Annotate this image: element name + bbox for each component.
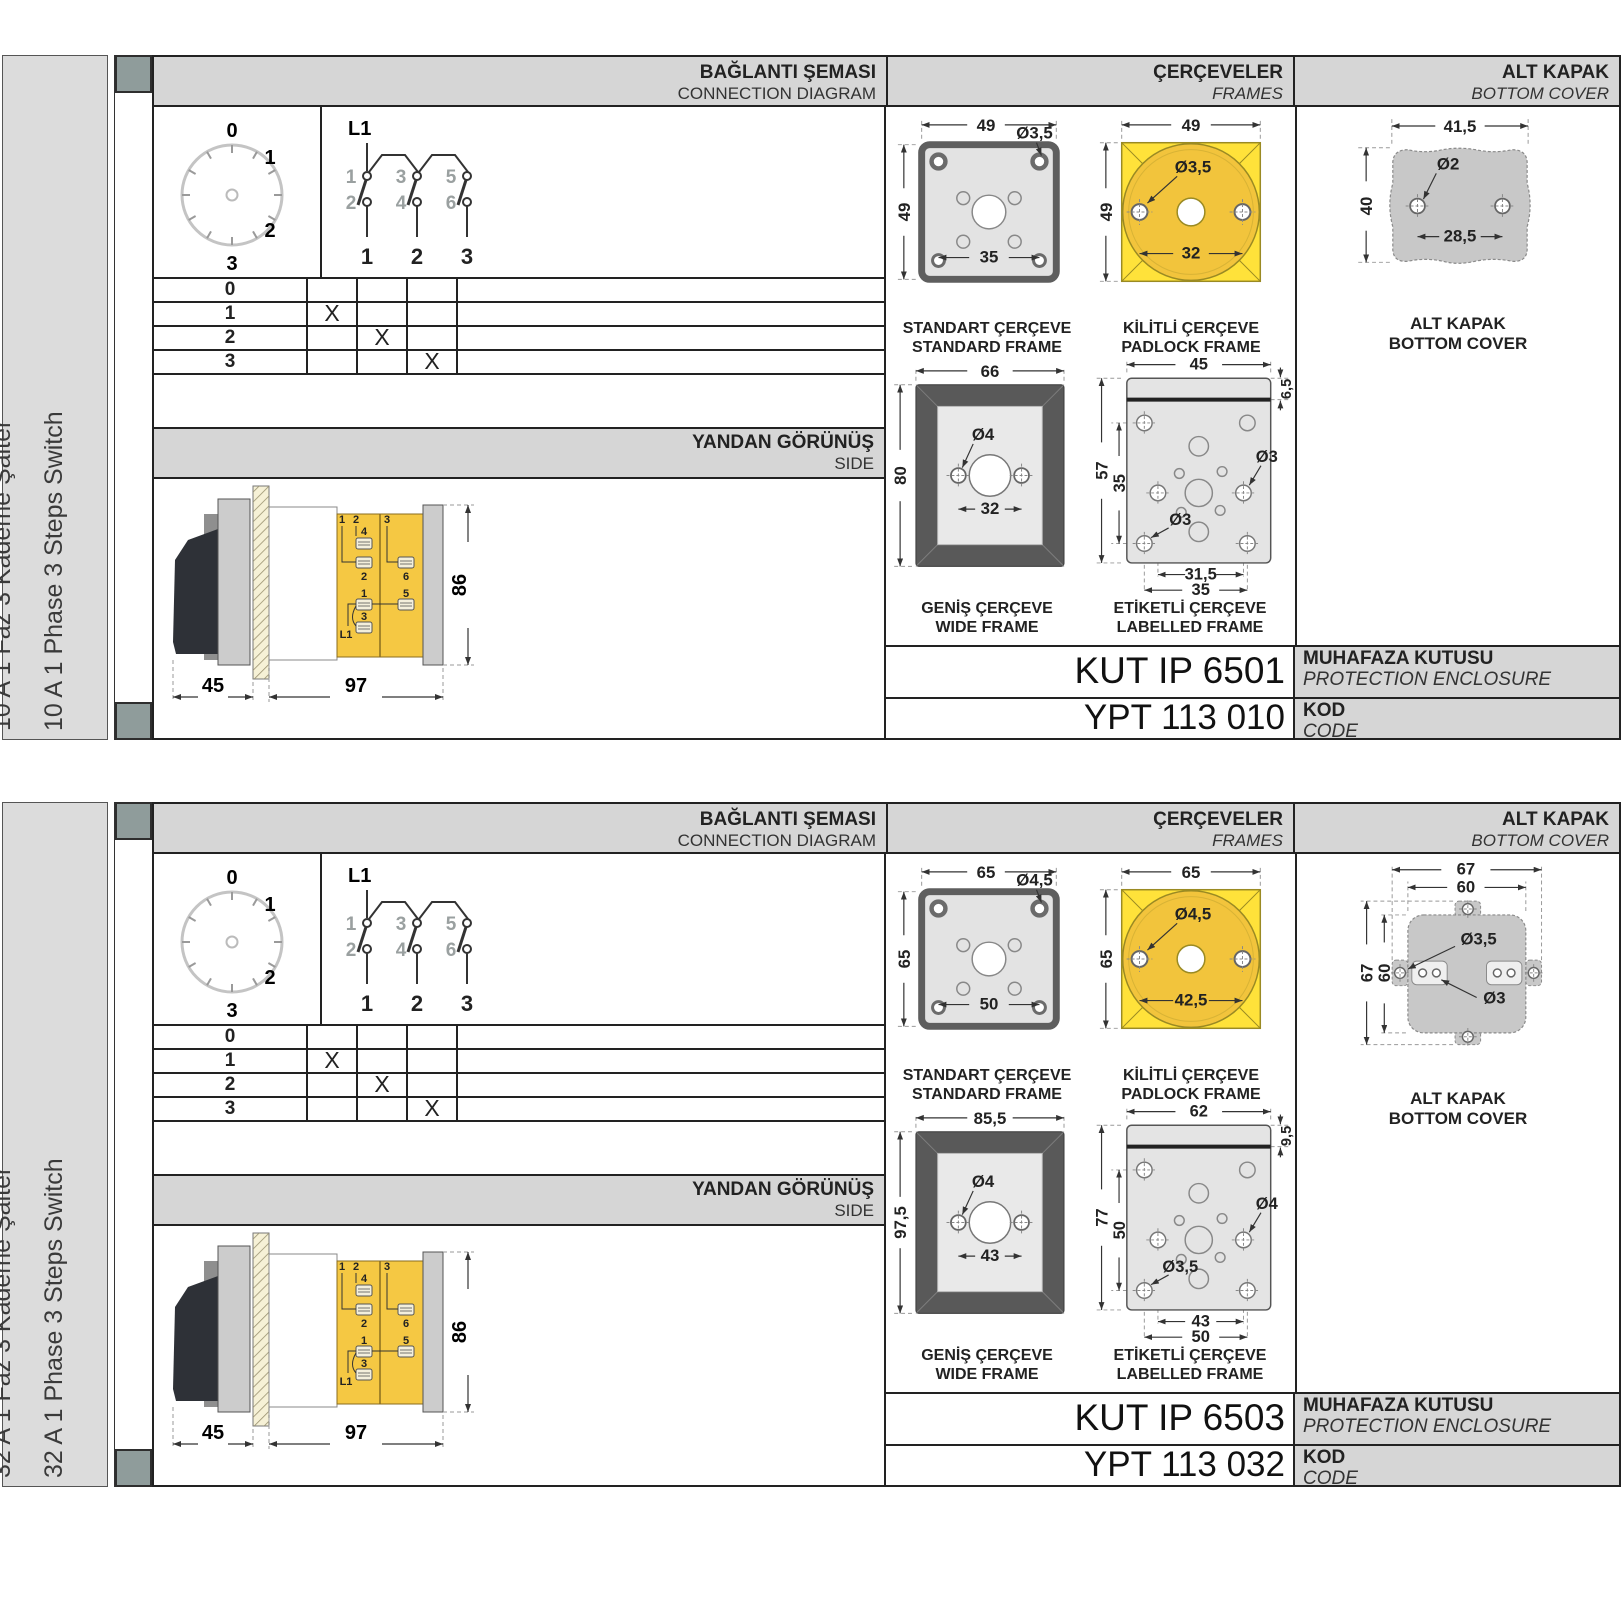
wide-frame-drawing: 66 80 Ø4 32 <box>888 361 1086 600</box>
row-label: 0 <box>154 279 306 301</box>
terminal-label: 2 <box>361 1318 367 1330</box>
side-title-tr: YANDAN GÖRÜNÜŞ <box>154 432 874 454</box>
lab-dim-inner-height: 50 <box>1110 1221 1129 1239</box>
connection-title-tr: BAĞLANTI ŞEMASI <box>158 62 876 84</box>
row-label: 0 <box>154 1026 306 1048</box>
l1-label: L1 <box>348 118 371 140</box>
pole-1: 1 <box>361 244 373 269</box>
terminal-2: 2 <box>346 940 357 961</box>
wire-label: 2 <box>353 1261 359 1273</box>
product-title-english: 10 A 1 Phase 3 Steps Switch <box>40 411 69 731</box>
switch-handle <box>173 529 218 654</box>
product-section: 10 A 1 Faz 3 Kademe Şalter 10 A 1 Phase … <box>0 55 1623 740</box>
terminal-1: 1 <box>346 167 357 188</box>
pole-2: 2 <box>411 244 423 269</box>
enclosure-code: KUT IP 6503 <box>886 1394 1293 1444</box>
mark-cell <box>406 1026 458 1048</box>
wire-label: 3 <box>384 514 390 526</box>
terminal-label: 6 <box>403 1318 409 1330</box>
cover-dim-width: 41,5 <box>1444 117 1477 136</box>
row-label: 3 <box>154 351 306 373</box>
mark-cell <box>306 1026 356 1048</box>
order-code: YPT 113 032 <box>886 1446 1293 1485</box>
switch-body-front <box>269 507 337 660</box>
pad-dim-inner: 32 <box>1182 244 1201 263</box>
lab-hole-right: Ø3 <box>1256 447 1278 466</box>
caption-en: BOTTOM COVER <box>1297 334 1619 354</box>
std-dim-inner: 35 <box>980 248 999 267</box>
l1-label: L1 <box>348 865 371 887</box>
binder-spine <box>114 55 152 740</box>
cover-title-en: BOTTOM COVER <box>1299 831 1609 850</box>
terminal-3: 3 <box>396 167 407 188</box>
protection-enclosure-row: KUT IP 6501 MUHAFAZA KUTUSU PROTECTION E… <box>886 645 1619 697</box>
order-code: YPT 113 010 <box>886 699 1293 738</box>
standard-frame-caption: STANDART ÇERÇEVE STANDARD FRAME <box>888 1066 1086 1104</box>
mark-cell <box>356 1098 406 1120</box>
caption-tr: ETİKETLİ ÇERÇEVE <box>1090 1346 1290 1365</box>
wide-dim-width: 66 <box>981 362 1000 381</box>
frames-area: 49 49 Ø3,5 35 STANDART ÇERÇEVE STANDARD … <box>886 107 1295 645</box>
table-row: 0 <box>154 279 884 303</box>
mark-cell <box>406 303 458 325</box>
side-view-drawing: 1 2 3 4 2 6 1 5 3 L1 <box>160 1199 680 1462</box>
product-title-turkish: 32 A 1 Faz 3 Kademe Şalter <box>0 1167 17 1478</box>
enclosure-label-en: PROTECTION ENCLOSURE <box>1303 1417 1611 1437</box>
wide-hole-dia: Ø4 <box>972 425 995 444</box>
order-code-row: YPT 113 032 KOD CODE <box>886 1444 1619 1485</box>
mark-cell <box>406 1050 458 1072</box>
caption-tr: GENİŞ ÇERÇEVE <box>888 599 1086 618</box>
padlock-frame-drawing: 49 49 Ø3,5 32 <box>1092 109 1290 322</box>
lab-dim-width: 45 <box>1190 354 1208 373</box>
pad-dim-width: 65 <box>1182 863 1201 882</box>
caption-en: STANDARD FRAME <box>888 338 1086 357</box>
row-label: 2 <box>154 327 306 349</box>
padlock-frame-drawing: 65 65 Ø4,5 42,5 <box>1092 856 1290 1069</box>
pad-dim-inner: 42,5 <box>1175 991 1208 1010</box>
bottom-cover-caption: ALT KAPAK BOTTOM COVER <box>1297 1089 1619 1129</box>
mark-cell <box>306 279 356 301</box>
wire-label: 1 <box>339 1261 345 1273</box>
code-label-tr: KOD <box>1303 700 1611 722</box>
caption-en: WIDE FRAME <box>888 1365 1086 1384</box>
header-connection-diagram: BAĞLANTI ŞEMASI CONNECTION DIAGRAM <box>154 804 886 852</box>
cover-dim-w2: 60 <box>1457 877 1476 896</box>
header-bottom-cover: ALT KAPAK BOTTOM COVER <box>1293 57 1619 105</box>
labelled-frame-drawing: 62 9,5 77 50 Ø4 Ø3,5 43 50 <box>1086 1098 1295 1348</box>
caption-en: WIDE FRAME <box>888 618 1086 637</box>
binder-spine <box>114 802 152 1487</box>
switch-handle <box>173 1276 218 1401</box>
terminal-label: 6 <box>403 571 409 583</box>
table-row: 1 X <box>154 303 884 327</box>
bottom-cover-drawing-square: 67 60 67 60 Ø3,5 Ø3 ALT KAPAK BOTTOM COV… <box>1297 854 1619 1129</box>
catalog-page: 10 A 1 Faz 3 Kademe Şalter 10 A 1 Phase … <box>0 0 1623 1623</box>
lab-hole-left: Ø3,5 <box>1162 1257 1198 1276</box>
mark-cell: X <box>306 303 356 325</box>
caption-en: LABELLED FRAME <box>1090 618 1290 637</box>
mark-cell <box>356 1026 406 1048</box>
caption-tr: KİLİTLİ ÇERÇEVE <box>1092 319 1290 338</box>
product-sidebar: 10 A 1 Faz 3 Kademe Şalter 10 A 1 Phase … <box>2 55 108 740</box>
connection-diagram-area: 0 1 2 3 L1 <box>154 854 886 1485</box>
caption-en: BOTTOM COVER <box>1297 1109 1619 1129</box>
enclosure-label-tr: MUHAFAZA KUTUSU <box>1303 648 1611 670</box>
product-section: 32 A 1 Faz 3 Kademe Şalter 32 A 1 Phase … <box>0 802 1623 1487</box>
frames-title-en: FRAMES <box>892 831 1283 850</box>
lab-dim-height: 57 <box>1092 461 1111 479</box>
pole-3: 3 <box>461 244 473 269</box>
mark-cell <box>356 1050 406 1072</box>
lab-dim-strip: 9,5 <box>1279 1126 1295 1146</box>
caption-en: LABELLED FRAME <box>1090 1365 1290 1384</box>
mark-cell: X <box>356 1074 406 1096</box>
cover-hole-dia: Ø2 <box>1437 154 1459 173</box>
dial-pos-0: 0 <box>226 867 237 889</box>
mark-cell <box>356 351 406 373</box>
caption-tr: STANDART ÇERÇEVE <box>888 319 1086 338</box>
cover-dim-height: 40 <box>1357 197 1376 216</box>
spine-square-bottom <box>115 702 152 740</box>
pole-1: 1 <box>361 991 373 1016</box>
terminal-6: 6 <box>446 193 457 214</box>
enclosure-label-en: PROTECTION ENCLOSURE <box>1303 670 1611 690</box>
terminal-label: 5 <box>403 588 409 600</box>
protection-enclosure-row: KUT IP 6503 MUHAFAZA KUTUSU PROTECTION E… <box>886 1392 1619 1444</box>
mark-cell <box>306 327 356 349</box>
switch-dial-drawing: 0 1 2 3 <box>154 107 322 279</box>
std-dim-width: 49 <box>977 116 996 135</box>
mark-cell: X <box>406 351 458 373</box>
mark-cell: X <box>306 1050 356 1072</box>
contact-schematic: L1 <box>322 107 884 279</box>
code-label-tr: KOD <box>1303 1447 1611 1469</box>
enclosure-label-tr: MUHAFAZA KUTUSU <box>1303 1395 1611 1417</box>
product-sidebar: 32 A 1 Faz 3 Kademe Şalter 32 A 1 Phase … <box>2 802 108 1487</box>
enclosure-label: MUHAFAZA KUTUSU PROTECTION ENCLOSURE <box>1293 647 1619 697</box>
terminal-4: 4 <box>396 193 407 214</box>
cover-dim-inner: 28,5 <box>1444 227 1477 246</box>
pad-hole-dia: Ø4,5 <box>1175 904 1211 923</box>
wide-frame-caption: GENİŞ ÇERÇEVE WIDE FRAME <box>888 599 1086 637</box>
row-label: 1 <box>154 1050 306 1072</box>
pole-2: 2 <box>411 991 423 1016</box>
cover-title-tr: ALT KAPAK <box>1299 809 1609 831</box>
pad-dim-width: 49 <box>1182 116 1201 135</box>
dial-pos-1: 1 <box>264 894 275 916</box>
product-title-turkish: 10 A 1 Faz 3 Kademe Şalter <box>0 420 17 731</box>
lab-hole-left: Ø3 <box>1169 510 1191 529</box>
row-label: 2 <box>154 1074 306 1096</box>
frames-title-tr: ÇERÇEVELER <box>892 62 1283 84</box>
caption-tr: KİLİTLİ ÇERÇEVE <box>1092 1066 1290 1085</box>
end-plate <box>423 1252 443 1412</box>
connection-title-en: CONNECTION DIAGRAM <box>158 831 876 850</box>
wide-dim-inner: 43 <box>981 1246 1000 1265</box>
product-title-english: 32 A 1 Phase 3 Steps Switch <box>40 1158 69 1478</box>
pole-3: 3 <box>461 991 473 1016</box>
caption-tr: ALT KAPAK <box>1297 314 1619 334</box>
dim-body-depth: 97 <box>345 675 367 697</box>
terminal-label: 3 <box>361 611 367 623</box>
terminal-label: 5 <box>403 1335 409 1347</box>
pad-dim-height: 49 <box>1097 203 1116 222</box>
dial-center <box>227 937 238 948</box>
lab-dim-outer-width: 35 <box>1192 580 1210 596</box>
spine-square-top <box>115 55 152 93</box>
dial-pos-1: 1 <box>264 147 275 169</box>
side-view-drawing: 1 2 3 4 2 6 1 5 3 L1 <box>160 452 680 715</box>
dial-pos-3: 3 <box>226 253 237 275</box>
code-label-en: CODE <box>1303 1469 1611 1489</box>
caption-tr: ALT KAPAK <box>1297 1089 1619 1109</box>
lab-dim-inner-height: 35 <box>1110 474 1129 492</box>
table-row: 2 X <box>154 327 884 351</box>
labelled-frame-drawing: 45 6,5 57 35 Ø3 Ø3 31,5 35 <box>1086 351 1295 601</box>
datasheet-panel: BAĞLANTI ŞEMASI CONNECTION DIAGRAM ÇERÇE… <box>152 55 1621 740</box>
terminal-1: 1 <box>346 914 357 935</box>
wide-dim-inner: 32 <box>981 499 1000 518</box>
std-hole-dia: Ø4,5 <box>1016 871 1052 890</box>
spine-square-top <box>115 802 152 840</box>
switch-body-front <box>269 1254 337 1407</box>
connection-title-tr: BAĞLANTI ŞEMASI <box>158 809 876 831</box>
lab-dim-width: 62 <box>1190 1101 1208 1120</box>
lab-dim-height: 77 <box>1092 1208 1111 1226</box>
dial-pos-2: 2 <box>264 220 275 242</box>
mark-cell <box>306 351 356 373</box>
cover-dim-h1: 67 <box>1358 964 1377 983</box>
code-label-en: CODE <box>1303 722 1611 742</box>
bottom-cover-area: ALT KAPAK BOTTOM COVER <box>1295 854 1619 1392</box>
l1-wire-label: L1 <box>340 1376 353 1388</box>
contact-schematic: L1 <box>322 854 884 1026</box>
wide-hole-dia: Ø4 <box>972 1172 995 1191</box>
wide-frame-drawing: 85,5 97,5 Ø4 43 <box>888 1108 1086 1347</box>
position-table: 0 1 X 2 X 3 <box>154 1026 884 1122</box>
terminal-label: 4 <box>361 1273 368 1285</box>
panel-header: BAĞLANTI ŞEMASI CONNECTION DIAGRAM ÇERÇE… <box>154 804 1619 854</box>
dim-body-depth: 97 <box>345 1422 367 1444</box>
std-dim-height: 65 <box>895 950 914 969</box>
front-plate <box>218 499 250 665</box>
caption-tr: STANDART ÇERÇEVE <box>888 1066 1086 1085</box>
row-label: 3 <box>154 1098 306 1120</box>
pad-dim-height: 65 <box>1097 950 1116 969</box>
mark-cell <box>306 1074 356 1096</box>
dim-height: 86 <box>449 574 471 596</box>
caption-tr: GENİŞ ÇERÇEVE <box>888 1346 1086 1365</box>
row-label: 1 <box>154 303 306 325</box>
spine-square-bottom <box>115 1449 152 1487</box>
datasheet-panel: BAĞLANTI ŞEMASI CONNECTION DIAGRAM ÇERÇE… <box>152 802 1621 1487</box>
caption-tr: ETİKETLİ ÇERÇEVE <box>1090 599 1290 618</box>
caption-en: STANDARD FRAME <box>888 1085 1086 1104</box>
dial-pos-3: 3 <box>226 1000 237 1022</box>
pad-hole-dia: Ø3,5 <box>1175 157 1211 176</box>
wire-label: 3 <box>384 1261 390 1273</box>
std-dim-width: 65 <box>977 863 996 882</box>
wide-dim-height: 80 <box>891 466 910 485</box>
terminal-label: 2 <box>361 571 367 583</box>
connection-diagram-area: 0 1 2 3 L1 <box>154 107 886 738</box>
terminal-3: 3 <box>396 914 407 935</box>
dim-handle-depth: 45 <box>202 1422 224 1444</box>
mark-cell: X <box>356 327 406 349</box>
dial-pos-0: 0 <box>226 120 237 142</box>
terminal-label: 4 <box>361 526 368 538</box>
code-label: KOD CODE <box>1293 699 1619 738</box>
table-row: 2 X <box>154 1074 884 1098</box>
cover-title-tr: ALT KAPAK <box>1299 62 1609 84</box>
terminal-label: 1 <box>361 588 367 600</box>
terminal-label: 3 <box>361 1358 367 1370</box>
wide-dim-height: 97,5 <box>891 1206 910 1239</box>
cover-title-en: BOTTOM COVER <box>1299 84 1609 103</box>
mark-cell <box>306 1098 356 1120</box>
lab-hole-right: Ø4 <box>1256 1194 1279 1213</box>
cover-dim-w1: 67 <box>1457 860 1476 879</box>
terminal-label: 1 <box>361 1335 367 1347</box>
wire-label: 1 <box>339 514 345 526</box>
switch-dial-drawing: 0 1 2 3 <box>154 854 322 1026</box>
terminal-2: 2 <box>346 193 357 214</box>
labelled-frame-caption: ETİKETLİ ÇERÇEVE LABELLED FRAME <box>1090 1346 1290 1384</box>
table-row: 1 X <box>154 1050 884 1074</box>
position-table: 0 1 X 2 X 3 <box>154 279 884 375</box>
dial-center <box>227 190 238 201</box>
standard-frame-drawing: 65 65 Ø4,5 50 <box>888 856 1086 1069</box>
terminal-6: 6 <box>446 940 457 961</box>
mark-cell <box>356 279 406 301</box>
mark-cell <box>356 303 406 325</box>
header-frames: ÇERÇEVELER FRAMES <box>886 804 1293 852</box>
header-bottom-cover: ALT KAPAK BOTTOM COVER <box>1293 804 1619 852</box>
terminal-5: 5 <box>446 914 457 935</box>
wire-label: 2 <box>353 514 359 526</box>
bottom-cover-caption: ALT KAPAK BOTTOM COVER <box>1297 314 1619 354</box>
wide-frame-caption: GENİŞ ÇERÇEVE WIDE FRAME <box>888 1346 1086 1384</box>
mark-cell: X <box>406 1098 458 1120</box>
frames-area: 65 65 Ø4,5 50 STANDART ÇERÇEVE STANDARD … <box>886 854 1295 1392</box>
table-row: 3 X <box>154 1098 884 1122</box>
code-label: KOD CODE <box>1293 1446 1619 1485</box>
order-code-row: YPT 113 010 KOD CODE <box>886 697 1619 738</box>
header-frames: ÇERÇEVELER FRAMES <box>886 57 1293 105</box>
enclosure-label: MUHAFAZA KUTUSU PROTECTION ENCLOSURE <box>1293 1394 1619 1444</box>
cover-hole1-dia: Ø3,5 <box>1461 929 1497 948</box>
terminal-4: 4 <box>396 940 407 961</box>
dial-pos-2: 2 <box>264 967 275 989</box>
std-dim-height: 49 <box>895 203 914 222</box>
dim-handle-depth: 45 <box>202 675 224 697</box>
bottom-cover-area: 41,5 40 Ø2 28,5 ALT KAPAK BOTTOM COVER <box>1295 107 1619 645</box>
labelled-frame-caption: ETİKETLİ ÇERÇEVE LABELLED FRAME <box>1090 599 1290 637</box>
cover-hole2-dia: Ø3 <box>1483 988 1505 1007</box>
frames-title-en: FRAMES <box>892 84 1283 103</box>
standard-frame-caption: STANDART ÇERÇEVE STANDARD FRAME <box>888 319 1086 357</box>
panel-header: BAĞLANTI ŞEMASI CONNECTION DIAGRAM ÇERÇE… <box>154 57 1619 107</box>
standard-frame-drawing: 49 49 Ø3,5 35 <box>888 109 1086 322</box>
end-plate <box>423 505 443 665</box>
lab-dim-strip: 6,5 <box>1279 379 1295 399</box>
table-row: 0 <box>154 1026 884 1050</box>
mark-cell <box>406 279 458 301</box>
std-dim-inner: 50 <box>980 995 999 1014</box>
terminal-5: 5 <box>446 167 457 188</box>
connection-title-en: CONNECTION DIAGRAM <box>158 84 876 103</box>
cover-dim-h2: 60 <box>1375 964 1394 983</box>
wide-dim-width: 85,5 <box>974 1109 1007 1128</box>
std-hole-dia: Ø3,5 <box>1016 124 1052 143</box>
table-row: 3 X <box>154 351 884 375</box>
front-plate <box>218 1246 250 1412</box>
l1-wire-label: L1 <box>340 629 353 641</box>
mark-cell <box>406 1074 458 1096</box>
header-connection-diagram: BAĞLANTI ŞEMASI CONNECTION DIAGRAM <box>154 57 886 105</box>
mark-cell <box>406 327 458 349</box>
lab-dim-outer-width: 50 <box>1192 1327 1210 1343</box>
enclosure-code: KUT IP 6501 <box>886 647 1293 697</box>
bottom-cover-drawing-round: 41,5 40 Ø2 28,5 ALT KAPAK BOTTOM COVER <box>1297 107 1619 354</box>
frames-title-tr: ÇERÇEVELER <box>892 809 1283 831</box>
dim-height: 86 <box>449 1321 471 1343</box>
side-title-tr: YANDAN GÖRÜNÜŞ <box>154 1179 874 1201</box>
